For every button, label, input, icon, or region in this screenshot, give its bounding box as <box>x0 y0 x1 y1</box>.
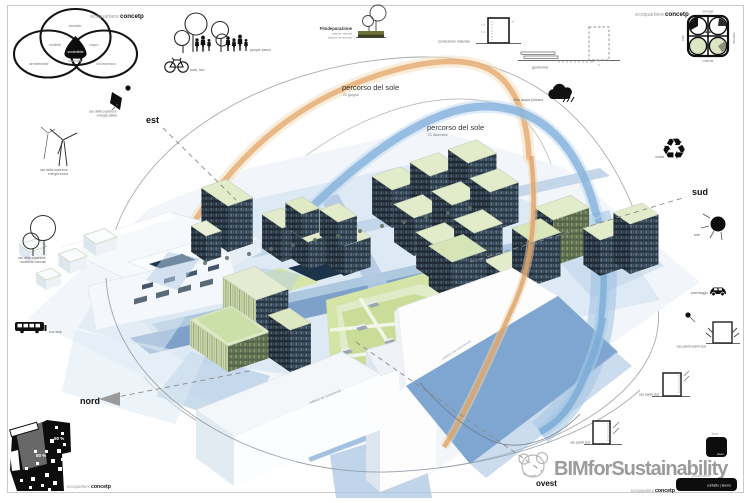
svg-text:vasche di raccolta: vasche di raccolta <box>328 36 352 40</box>
svg-text:sole: sole <box>694 233 700 237</box>
svg-text:concetp: concetp <box>655 488 675 494</box>
svg-text:uso pareti sud: uso pareti sud <box>639 393 659 397</box>
svg-text:Fitodepurazione: Fitodepurazione <box>320 26 353 31</box>
svg-text:21 giugno: 21 giugno <box>343 93 359 97</box>
svg-text:percorso del sole: percorso del sole <box>342 83 399 92</box>
svg-text:bus stop: bus stop <box>49 330 62 334</box>
svg-text:equo: equo <box>90 42 100 47</box>
svg-text:geotermia: geotermia <box>532 66 548 70</box>
svg-text:concetp: concetp <box>120 13 144 20</box>
svg-text:sostenibile: sostenibile <box>67 50 83 54</box>
svg-text:sole: sole <box>681 35 685 41</box>
svg-text:Note: Note <box>712 432 719 436</box>
svg-text:ecoquartiere: ecoquartiere <box>90 14 119 20</box>
svg-text:clean: clean <box>717 452 725 456</box>
svg-text:concetp: concetp <box>665 11 689 18</box>
svg-text:sistema: sistema <box>732 33 736 44</box>
svg-text:economico: economico <box>96 61 116 66</box>
svg-text:♻: ♻ <box>661 134 687 166</box>
svg-text:ambientale: ambientale <box>29 61 49 66</box>
svg-text:21 dicembre: 21 dicembre <box>428 133 448 137</box>
svg-text:sud: sud <box>692 187 708 197</box>
svg-text:energia solare: energia solare <box>97 114 117 118</box>
svg-text:sociale: sociale <box>69 23 82 28</box>
svg-text:ovest: ovest <box>536 479 557 488</box>
svg-text:vivibile: vivibile <box>49 42 62 47</box>
svg-text:energia eolica: energia eolica <box>48 172 68 176</box>
svg-text:parcheggio: parcheggio <box>691 291 708 295</box>
svg-text:ecoquartiere: ecoquartiere <box>67 484 91 489</box>
svg-text:nord: nord <box>80 396 100 406</box>
svg-text:pompa lavoro: pompa lavoro <box>692 474 712 478</box>
svg-text:concetp: concetp <box>91 484 111 490</box>
svg-text:ecoquartiere: ecoquartiere <box>631 488 655 493</box>
svg-text:convezione naturale: convezione naturale <box>438 40 470 44</box>
svg-text:uso pareti sud: uso pareti sud <box>570 441 590 445</box>
svg-text:est: est <box>146 115 159 125</box>
svg-text:materia: materia <box>703 59 714 63</box>
svg-text:uso pareti sventi-sud: uso pareti sventi-sud <box>677 345 707 349</box>
svg-text:ritiro acqua piovana: ritiro acqua piovana <box>513 98 543 102</box>
svg-text:sostenibile: sostenibile <box>68 59 83 63</box>
svg-text:ambiente naturale: ambiente naturale <box>20 260 46 264</box>
svg-text:50 %: 50 % <box>54 436 64 441</box>
svg-text:ecoquartiere: ecoquartiere <box>635 12 664 18</box>
svg-text:contatto | lavoro: contatto | lavoro <box>707 484 731 488</box>
svg-text:50 %: 50 % <box>36 453 46 458</box>
svg-text:energia: energia <box>703 10 714 14</box>
svg-text:people parco: people parco <box>250 48 271 52</box>
svg-text:ricicla: ricicla <box>655 155 664 159</box>
svg-text:park, bici: park, bici <box>190 68 205 72</box>
svg-text:percorso del sole: percorso del sole <box>427 123 484 132</box>
